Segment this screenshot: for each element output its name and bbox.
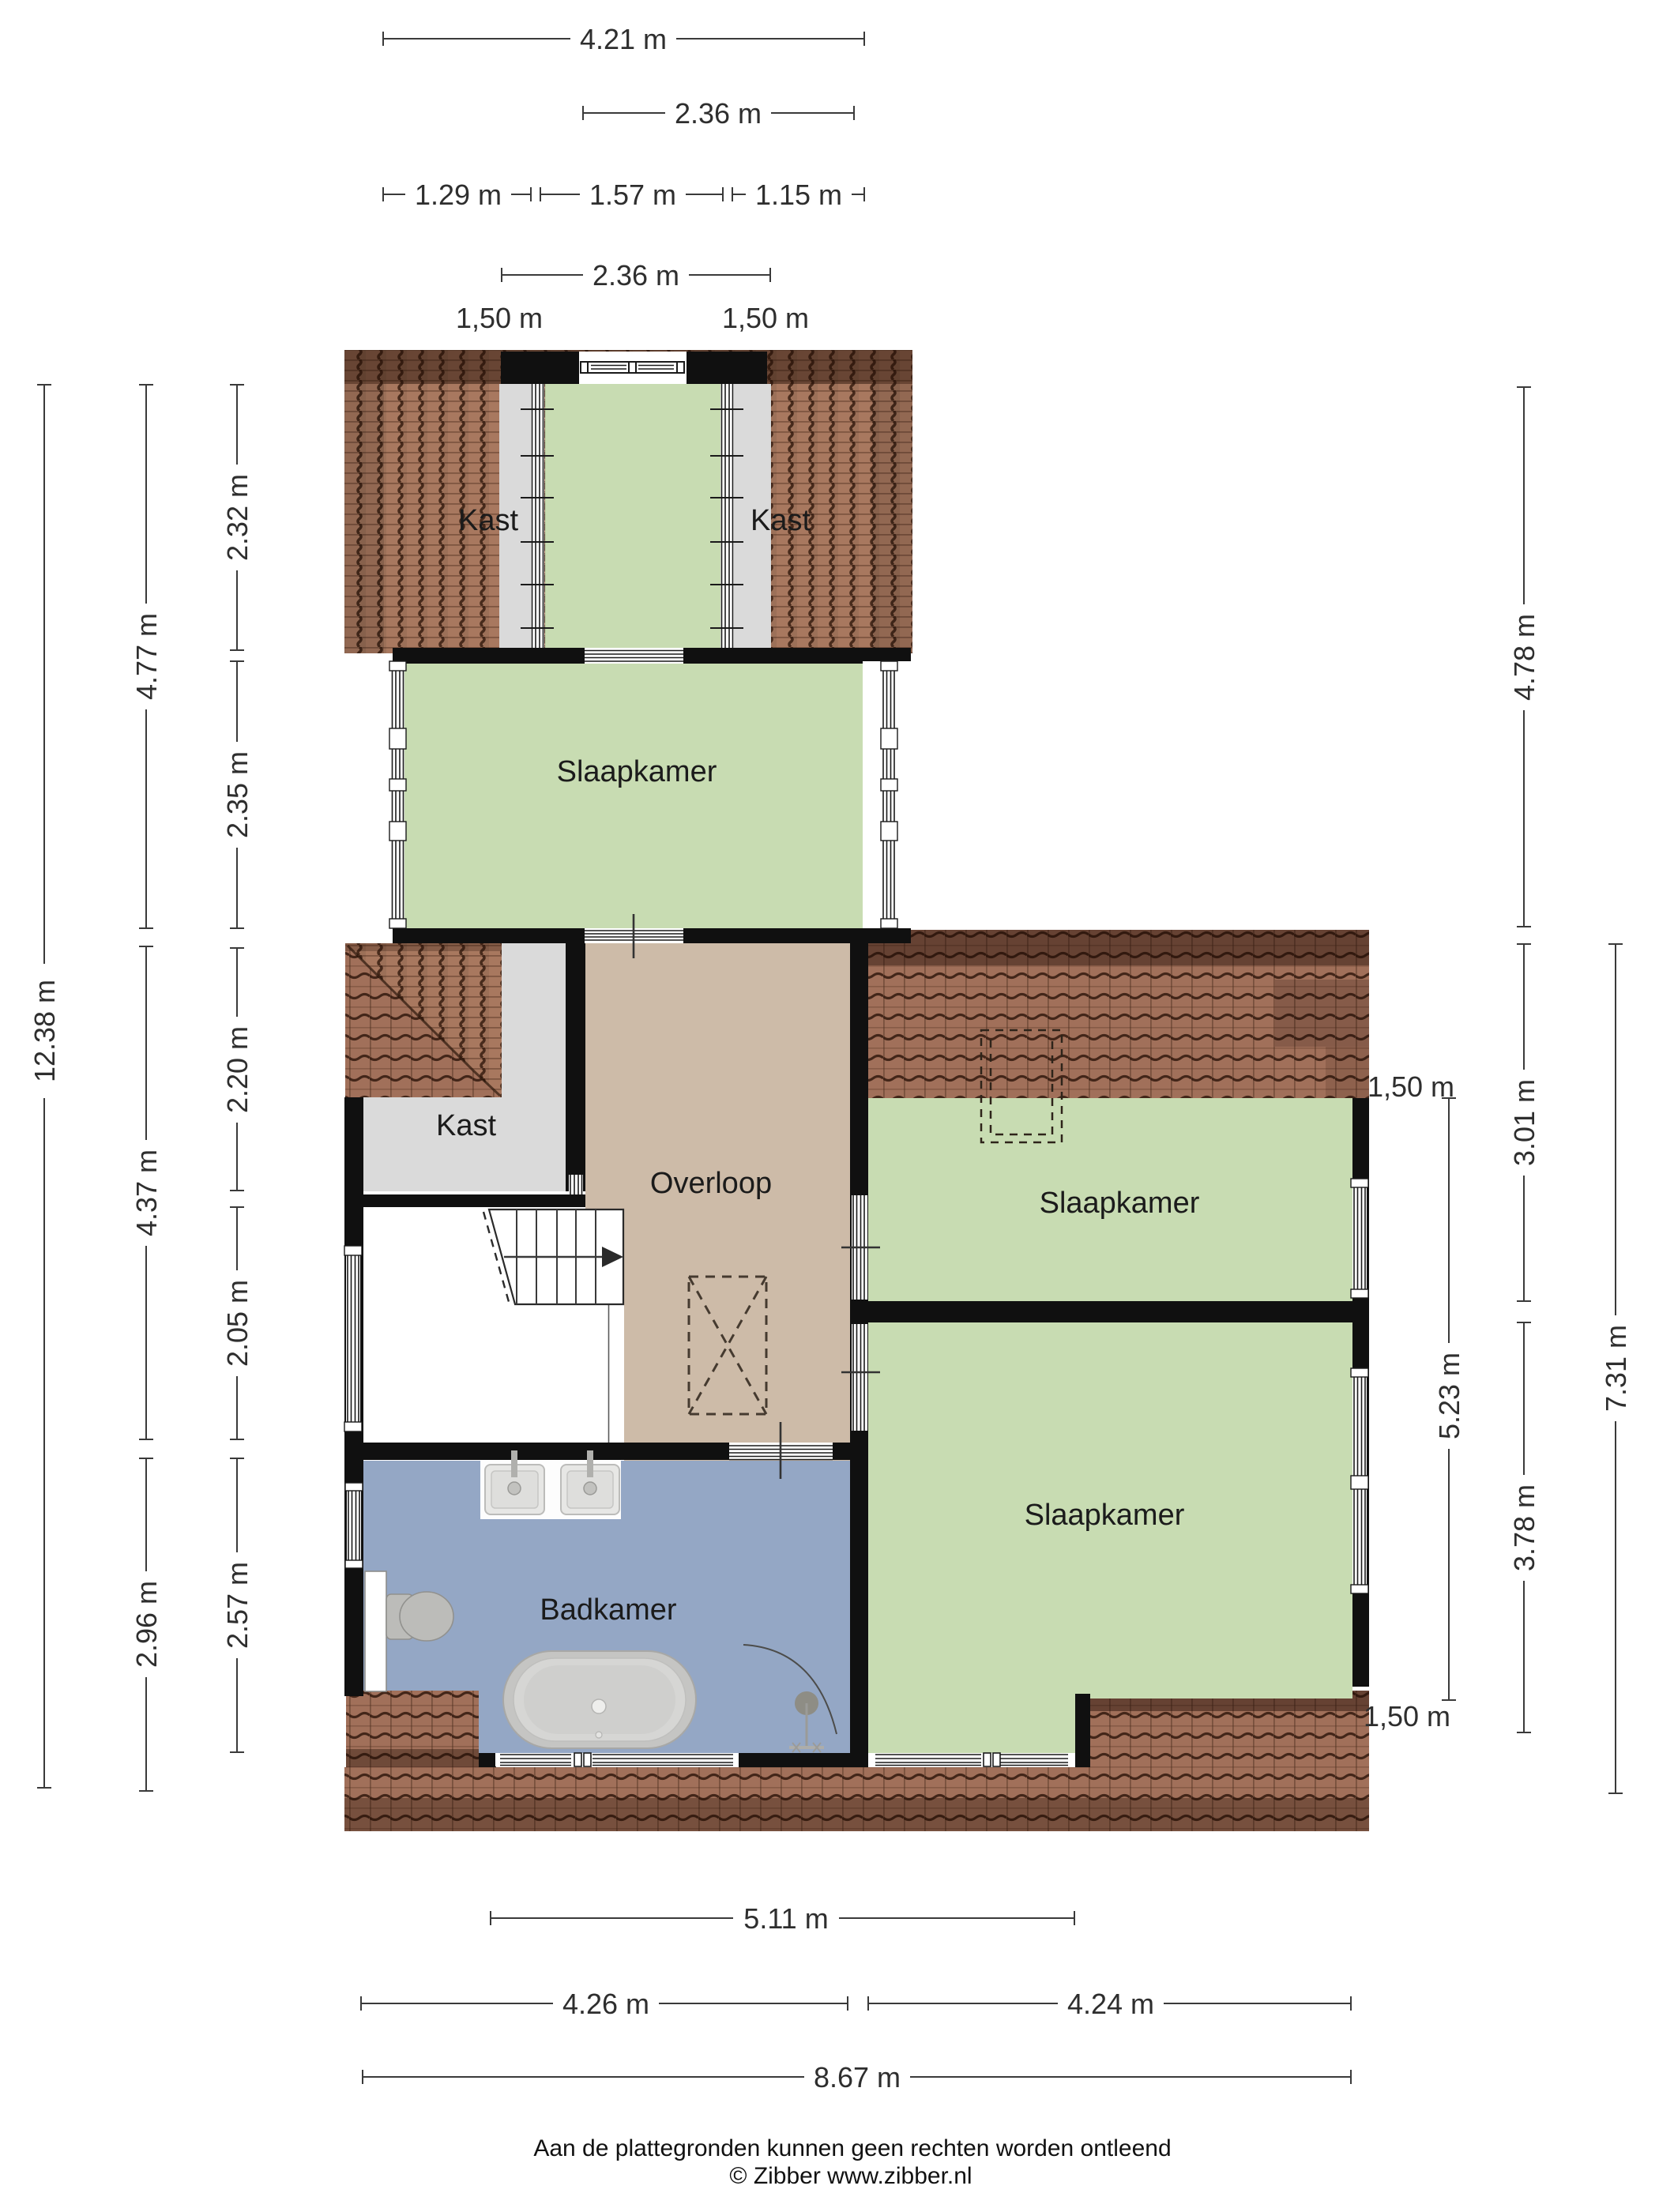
svg-text:5.11 m: 5.11 m — [743, 1902, 828, 1935]
svg-text:1,50 m: 1,50 m — [456, 302, 543, 334]
svg-text:1,50 m: 1,50 m — [1367, 1070, 1454, 1103]
svg-text:4.21 m: 4.21 m — [580, 23, 667, 55]
svg-text:2.05 m: 2.05 m — [221, 1280, 254, 1367]
svg-text:4.77 m: 4.77 m — [130, 613, 163, 700]
svg-text:1.15 m: 1.15 m — [755, 179, 842, 211]
svg-text:© Zibber www.zibber.nl: © Zibber www.zibber.nl — [729, 2163, 972, 2189]
svg-text:Badkamer: Badkamer — [540, 1593, 677, 1627]
svg-text:1,50 m: 1,50 m — [1364, 1700, 1450, 1732]
svg-text:2.36 m: 2.36 m — [675, 97, 762, 130]
svg-text:Aan de plattegronden kunnen ge: Aan de plattegronden kunnen geen rechten… — [533, 2135, 1171, 2161]
svg-text:Kast: Kast — [750, 504, 811, 537]
svg-text:Slaapkamer: Slaapkamer — [1025, 1499, 1185, 1532]
svg-text:Kast: Kast — [458, 504, 518, 537]
svg-text:4.37 m: 4.37 m — [130, 1149, 163, 1236]
svg-text:2.35 m: 2.35 m — [221, 751, 254, 838]
svg-text:2.96 m: 2.96 m — [130, 1581, 163, 1668]
svg-text:1.57 m: 1.57 m — [589, 179, 676, 211]
svg-text:12.38 m: 12.38 m — [28, 980, 61, 1082]
svg-text:5.23 m: 5.23 m — [1433, 1352, 1465, 1439]
svg-text:Slaapkamer: Slaapkamer — [557, 755, 717, 788]
svg-text:2.20 m: 2.20 m — [221, 1026, 254, 1113]
svg-text:2.36 m: 2.36 m — [592, 259, 679, 292]
svg-text:3.78 m: 3.78 m — [1508, 1484, 1540, 1571]
svg-text:7.31 m: 7.31 m — [1600, 1325, 1632, 1412]
svg-text:Kast: Kast — [436, 1109, 496, 1142]
svg-text:8.67 m: 8.67 m — [814, 2061, 901, 2093]
svg-text:3.01 m: 3.01 m — [1508, 1079, 1540, 1166]
svg-text:4.26 m: 4.26 m — [562, 1988, 649, 2020]
svg-text:4.78 m: 4.78 m — [1508, 614, 1540, 701]
svg-text:Overloop: Overloop — [650, 1167, 772, 1200]
svg-text:Slaapkamer: Slaapkamer — [1040, 1187, 1200, 1220]
svg-text:2.32 m: 2.32 m — [221, 474, 254, 561]
svg-text:2.57 m: 2.57 m — [221, 1562, 254, 1649]
svg-text:4.24 m: 4.24 m — [1067, 1988, 1154, 2020]
svg-text:1.29 m: 1.29 m — [415, 179, 502, 211]
svg-text:1,50 m: 1,50 m — [722, 302, 809, 334]
